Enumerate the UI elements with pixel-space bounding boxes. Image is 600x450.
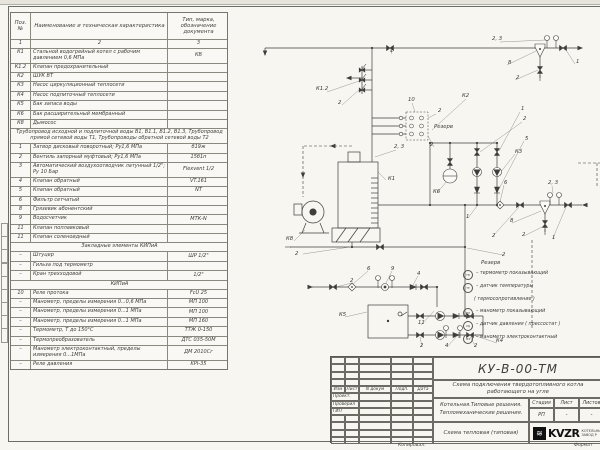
sym-v (560, 46, 567, 51)
sym-o (399, 124, 403, 128)
flow-arrow (308, 285, 314, 289)
sym-g (535, 44, 545, 57)
schematic-label: 5 (525, 136, 529, 142)
revision-cell (345, 372, 359, 379)
revision-cell (413, 415, 433, 422)
leader-line (500, 154, 515, 173)
leader-line (524, 226, 544, 236)
instrument-symbol: МЭ (463, 334, 473, 344)
drawing-sheet: Поз. №Наименование и техническая характе… (0, 0, 600, 450)
sym-p (436, 331, 445, 340)
schematic-label: 2 (338, 100, 342, 106)
schematic-label: 11 (418, 320, 425, 326)
sheets-header: Листов (579, 398, 600, 408)
sheet-name: Схема тепловая (типовая) (433, 422, 529, 444)
sheets-value: - (579, 408, 600, 422)
schematic-label: 8 (510, 218, 514, 224)
revision-cell (345, 437, 359, 444)
schematic-label: 6 (367, 266, 371, 272)
leader-line (294, 230, 305, 241)
pipe-junction (464, 246, 466, 248)
revision-cell (359, 430, 391, 437)
revision-cell (413, 401, 433, 408)
leader-line (552, 186, 553, 193)
revision-cell (359, 357, 391, 364)
schematic-label: 1 (576, 59, 579, 65)
schematic-label: 2, 3 (394, 144, 405, 150)
flow-arrow (578, 46, 584, 50)
revision-cell (359, 372, 391, 379)
revision-cell (391, 357, 413, 364)
revision-cell: Лист (345, 386, 359, 393)
revision-cell: ГИП (331, 408, 359, 415)
sym-v (417, 314, 424, 319)
sym-v (421, 285, 428, 290)
stage-value: РП (529, 408, 554, 422)
sym-m (376, 276, 381, 289)
schematic-label: 4 (445, 343, 448, 349)
revision-cell (331, 430, 345, 437)
leader-line (467, 248, 503, 255)
legend-title: Резерв (481, 260, 597, 266)
leader-line (512, 211, 541, 223)
sym-v (543, 221, 548, 228)
instrument-symbol: ТВ (463, 270, 473, 280)
revision-cell (331, 437, 345, 444)
legend-item: ( термосопротивление ) (463, 296, 597, 304)
leader-line (378, 172, 386, 180)
legend-item: МЭ– манометр электроконтактный (463, 334, 597, 344)
schematic-label: 2 (438, 108, 442, 114)
leader-line (493, 207, 519, 236)
revision-cell (345, 357, 359, 364)
pipe-junction (429, 204, 431, 206)
revision-cell (413, 364, 433, 371)
sym-w (382, 284, 389, 291)
revision-cell (345, 415, 359, 422)
object-line2: Тепломеханические решения. (440, 410, 523, 416)
revision-cell: Проверил (331, 401, 359, 408)
revision-cell (391, 364, 413, 371)
revision-cell (413, 430, 433, 437)
spacer (463, 296, 471, 304)
pipe-junction (476, 204, 478, 206)
flow-arrow (263, 51, 267, 57)
document-code: КУ-В-00-ТМ (433, 357, 600, 380)
revision-cell (359, 379, 391, 386)
stage-header: Стадия (529, 398, 554, 408)
sym-g (540, 201, 550, 214)
legend-item-text: – датчик температуры (476, 283, 533, 290)
pipe-junction (476, 142, 478, 144)
leader-line (413, 276, 418, 285)
sym-v (377, 245, 384, 250)
sym-o (399, 132, 403, 136)
revision-cell (331, 372, 345, 379)
revision-cell (413, 372, 433, 379)
leader-line (412, 103, 415, 112)
smoke-exhauster-k8 (294, 201, 329, 233)
sym-m (390, 276, 395, 289)
revision-cell (391, 401, 413, 408)
schematic-label: 2 (492, 233, 496, 239)
legend-item-text: ( термосопротивление ) (474, 296, 535, 303)
revision-cell: N докум (359, 386, 391, 393)
revision-cell (331, 415, 345, 422)
schematic-label: К8 (286, 236, 294, 242)
schematic-label: 1 (466, 214, 469, 220)
revision-cell (331, 422, 345, 429)
pipe-junction (464, 204, 466, 206)
legend-item: МН– манометр показывающий (463, 308, 597, 318)
schematic-label: 2 (502, 252, 506, 258)
sym-v (538, 67, 543, 74)
pipe-junction (371, 47, 373, 49)
water-storage-tank-k5 (368, 305, 408, 338)
sym-m (557, 193, 562, 206)
document-title: Схема подключения твердотопливного котла… (433, 380, 600, 398)
schematic-label: 6 (504, 180, 508, 186)
revision-cell (391, 422, 413, 429)
kvzr-logo-icon: ≋ (533, 427, 546, 440)
leader-line (566, 50, 575, 64)
leader-line (499, 112, 520, 151)
sheet-value: - (554, 408, 579, 422)
sym-p (493, 168, 502, 177)
revision-cell (359, 393, 391, 400)
sym-c (474, 187, 480, 193)
revision-cell (359, 408, 391, 415)
schematic-label: К3 (515, 149, 523, 155)
revision-cell (391, 379, 413, 386)
schematic-label: К6 (433, 189, 441, 195)
boiler-k1 (332, 152, 380, 242)
sym-v (495, 149, 500, 156)
sym-c (494, 187, 500, 193)
revision-cell (391, 372, 413, 379)
schematic-label: 2 (295, 251, 299, 257)
leader-line (342, 89, 360, 105)
reserve-instrument-box (406, 112, 428, 140)
sym-m (554, 36, 559, 49)
revision-cell (359, 415, 391, 422)
revision-cell (359, 422, 391, 429)
schematic-label: 1 (552, 235, 555, 241)
sym-v (565, 203, 572, 208)
object-line1: Котельная.Типовые решения. (440, 402, 522, 408)
flow-arrow (582, 203, 588, 207)
schematic-label: К5 (339, 312, 347, 318)
schematic-label: 1 (521, 106, 524, 112)
revision-cell (391, 430, 413, 437)
instrument-symbol: МН (463, 308, 473, 318)
revision-cell (413, 393, 433, 400)
schematic-label: К1.2 (316, 86, 329, 92)
revision-cell: Подп. (391, 386, 413, 393)
title-block: ИзмЛистN докумПодп.ДатаПроект.ПроверилГИ… (330, 356, 600, 443)
leader-line (375, 150, 396, 157)
revision-cell (359, 364, 391, 371)
revision-cell (413, 379, 433, 386)
instrument-symbol: ТЕ (463, 283, 473, 293)
sym-v (517, 203, 524, 208)
revision-cell (331, 364, 345, 371)
sym-v (417, 333, 424, 338)
pipe-junction (351, 246, 353, 248)
sym-c (453, 313, 459, 319)
legend-item-text: – датчик давления ( прессостат ) (476, 321, 560, 328)
revision-cell: Дата (413, 386, 433, 393)
revision-cell (413, 408, 433, 415)
revision-cell (413, 357, 433, 364)
legend-item: РД– датчик давления ( прессостат ) (463, 321, 597, 331)
revision-cell (331, 379, 345, 386)
schematic-label: 2 (350, 278, 354, 284)
revision-cell: Изм (331, 386, 345, 393)
leader-line (303, 247, 350, 254)
instrument-symbol: РД (463, 321, 473, 331)
company-logo-block: ≋ KVZR КОТЕЛЬНЫЙ ЗАВОД Р (529, 422, 600, 444)
sym-v (330, 285, 337, 290)
leader-line (353, 271, 368, 284)
revision-cell (345, 430, 359, 437)
schematic-label: 10 (408, 97, 415, 103)
leader-line (500, 40, 546, 42)
pipe-junction (436, 286, 438, 288)
sym-f (348, 283, 356, 291)
sym-m (458, 326, 463, 339)
instrument-legend: Резерв ТВ– термометр показывающийТЕ– дат… (463, 260, 597, 347)
leader-line (345, 312, 367, 317)
leader-line (553, 207, 566, 238)
schematic-label: 2, 3 (492, 36, 503, 42)
revision-cell (345, 379, 359, 386)
legend-item-text: – манометр показывающий (476, 308, 545, 315)
pipe-junction (449, 142, 451, 144)
revision-cell (391, 393, 413, 400)
revision-cell (359, 437, 391, 444)
revision-cell: Проект. (331, 393, 359, 400)
schematic-label: 2 (522, 232, 526, 238)
schematic-label: 1 (390, 48, 393, 54)
flow-arrow (330, 144, 336, 148)
leader-line (500, 185, 504, 202)
legend-item-text: – манометр электроконтактный (476, 334, 557, 341)
schematic-label: К1 (388, 176, 395, 182)
schematic-label: 4 (417, 271, 420, 277)
legend-item: ТЕ– датчик температуры (463, 283, 597, 293)
sheet-header: Лист (554, 398, 579, 408)
leader-line (327, 80, 362, 92)
sym-o (399, 116, 403, 120)
schematic-label: 2 (523, 116, 527, 122)
schematic-label: 2, 3 (548, 180, 559, 186)
pipe-junction (496, 142, 498, 144)
revision-cell (391, 408, 413, 415)
revision-cell (331, 357, 345, 364)
sym-s (359, 64, 366, 72)
schematic-label: Резерв (434, 124, 453, 130)
copied-label: Копировал: (398, 443, 426, 448)
revision-cell (345, 422, 359, 429)
schematic-label: 9 (391, 266, 395, 272)
leader-line (428, 114, 436, 118)
sym-v (475, 149, 480, 156)
sym-p (436, 312, 445, 321)
schematic-label: К2 (462, 93, 470, 99)
flow-arrow (346, 76, 352, 80)
object-name: Котельная.Типовые решения. Тепломеханиче… (433, 398, 529, 422)
legend-item: ТВ– термометр показывающий (463, 270, 597, 280)
kvzr-logo-text: KVZR (548, 427, 579, 440)
revision-cell (391, 415, 413, 422)
schematic-label: 2 (420, 343, 424, 349)
flow-arrow (301, 173, 305, 179)
legend-item-text: – термометр показывающий (476, 270, 548, 277)
sym-e (443, 169, 457, 183)
pipe-junction (496, 204, 498, 206)
format-label: Формат (574, 443, 593, 448)
revision-cell (359, 401, 391, 408)
revision-cell (413, 422, 433, 429)
kvzr-logo-caption: КОТЕЛЬНЫЙ ЗАВОД Р (581, 429, 600, 438)
sym-v (448, 159, 453, 166)
legend-items: ТВ– термометр показывающийТЕ– датчик тем… (463, 270, 597, 344)
sym-s (359, 84, 366, 92)
revision-cell (345, 364, 359, 371)
sym-p (473, 168, 482, 177)
